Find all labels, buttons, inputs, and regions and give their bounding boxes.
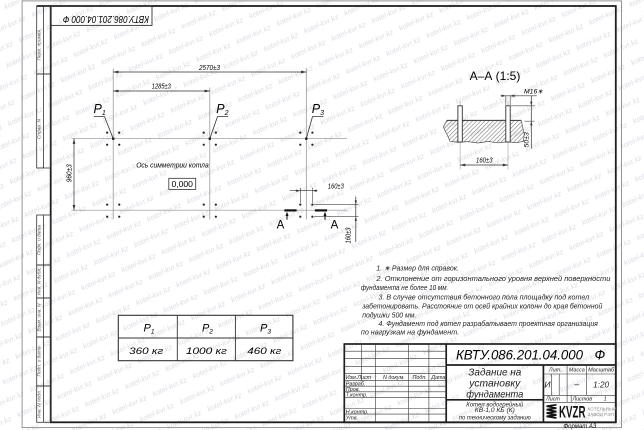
svg-text:подушки 500 мм.: подушки 500 мм. bbox=[362, 310, 416, 319]
svg-text:Формат А3: Формат А3 bbox=[563, 424, 596, 430]
svg-text:160±3: 160±3 bbox=[345, 227, 352, 243]
svg-text:Дата: Дата bbox=[430, 375, 445, 381]
svg-text:50±3: 50±3 bbox=[524, 132, 531, 147]
svg-text:Лист: Лист bbox=[545, 397, 560, 403]
svg-text:Ось симметрии котла: Ось симметрии котла bbox=[136, 160, 209, 169]
svg-text:Изм.Лист: Изм.Лист bbox=[346, 375, 372, 381]
svg-text:фундамента не более 10 мм.: фундамента не более 10 мм. bbox=[361, 283, 448, 292]
svg-text:по техническому заданию: по техническому заданию bbox=[459, 416, 531, 422]
svg-text:КВ-1,0 КБ (К): КВ-1,0 КБ (К) bbox=[475, 408, 515, 414]
svg-text:фундамента: фундамента bbox=[466, 389, 523, 401]
svg-text:1. ∗ Размер для справок.: 1. ∗ Размер для справок. bbox=[376, 263, 459, 272]
svg-text:И: И bbox=[544, 380, 551, 390]
svg-text:1285±3: 1285±3 bbox=[152, 81, 172, 90]
svg-text:2570±3: 2570±3 bbox=[198, 63, 221, 72]
svg-text:А: А bbox=[277, 220, 285, 232]
svg-text:2. Отклонение от горизонтально: 2. Отклонение от горизонтального уровня … bbox=[375, 274, 610, 283]
svg-text:Ф: Ф bbox=[595, 348, 606, 363]
svg-text:Инв. N подл.: Инв. N подл. bbox=[37, 390, 43, 418]
svg-text:960±3: 960±3 bbox=[65, 163, 74, 182]
svg-text:забетонировать. Расстояние от: забетонировать. Расстояние от осей крайн… bbox=[361, 302, 602, 311]
svg-text:Подп. и дата: Подп. и дата bbox=[37, 346, 43, 376]
svg-text:N докум.: N докум. bbox=[383, 375, 405, 381]
svg-text:Задание на: Задание на bbox=[468, 367, 521, 378]
svg-text:Перв. примен.: Перв. примен. bbox=[37, 29, 43, 61]
svg-text:Инв. N дубл.: Инв. N дубл. bbox=[37, 268, 43, 296]
svg-text:Масштаб: Масштаб bbox=[588, 368, 615, 374]
svg-text:1: 1 bbox=[604, 397, 607, 403]
svg-text:160±3: 160±3 bbox=[328, 184, 344, 191]
svg-text:Масса: Масса bbox=[569, 368, 585, 374]
svg-text:Взам. инв. N: Взам. инв. N bbox=[37, 303, 43, 331]
svg-text:Подп.: Подп. bbox=[413, 375, 427, 381]
svg-text:0,000: 0,000 bbox=[171, 179, 193, 189]
svg-text:КВТУ.086.201.04.000: КВТУ.086.201.04.000 bbox=[456, 348, 583, 363]
svg-text:А–А (1:5): А–А (1:5) bbox=[470, 69, 521, 83]
svg-text:Листов: Листов bbox=[571, 397, 592, 403]
svg-text:Справ. N: Справ. N bbox=[37, 118, 43, 139]
svg-text:1000 кг: 1000 кг bbox=[186, 346, 227, 357]
svg-text:Т.контр.: Т.контр. bbox=[346, 393, 368, 399]
svg-text:KVZR: KVZR bbox=[559, 404, 586, 422]
svg-text:установку: установку bbox=[468, 379, 521, 390]
svg-text:–: – bbox=[573, 379, 579, 389]
svg-text:А: А bbox=[331, 220, 339, 232]
svg-text:КОТЕЛЬНЫЙ: КОТЕЛЬНЫЙ bbox=[588, 405, 617, 412]
svg-text:3. В случае отсутствия бетонно: 3. В случае отсутствия бетонного пола пл… bbox=[379, 293, 590, 302]
svg-text:КВТУ.086.201.04.000 Ф: КВТУ.086.201.04.000 Ф bbox=[63, 13, 149, 25]
svg-text:по нагрузкам на фундамент.: по нагрузкам на фундамент. bbox=[361, 327, 459, 336]
svg-text:160±3: 160±3 bbox=[476, 158, 493, 165]
svg-text:Лит.: Лит. bbox=[548, 368, 562, 374]
svg-text:Подп. и дата: Подп. и дата bbox=[37, 225, 43, 255]
svg-text:360 кг: 360 кг bbox=[129, 346, 163, 357]
svg-text:Утв.: Утв. bbox=[345, 416, 358, 422]
svg-text:М16∗: М16∗ bbox=[524, 89, 543, 96]
svg-text:1:20: 1:20 bbox=[593, 381, 609, 390]
svg-text:460 кг: 460 кг bbox=[247, 346, 281, 357]
svg-text:ЗАВОД РЭП: ЗАВОД РЭП bbox=[588, 412, 614, 417]
svg-text:Н.контр.: Н.контр. bbox=[346, 409, 369, 415]
